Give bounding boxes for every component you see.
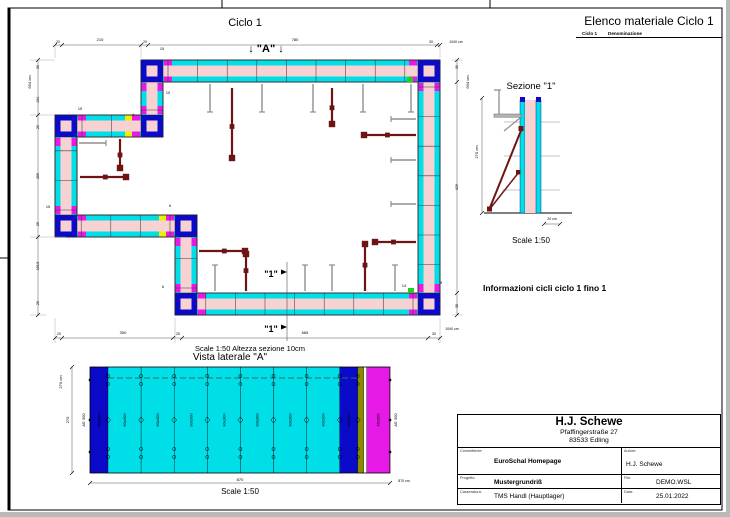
- svg-text:20: 20: [57, 332, 61, 336]
- svg-text:30: 30: [432, 332, 436, 336]
- svg-text:25: 25: [36, 301, 40, 305]
- cycle-info-title: Informazioni cicli ciclo 1 fino 1: [483, 283, 661, 293]
- data-label: Data:: [624, 490, 633, 494]
- svg-text:35: 35: [455, 304, 459, 308]
- svg-text:15: 15: [160, 47, 164, 51]
- svg-text:780: 780: [292, 37, 299, 42]
- svg-text:134: 134: [36, 97, 40, 103]
- material-list-title: Elenco materiale Ciclo 1: [576, 14, 722, 28]
- committente-cell: Committente: EuroSchal Homepage: [458, 448, 622, 475]
- svg-text:629: 629: [455, 184, 459, 190]
- plan-view-walls: [55, 60, 440, 315]
- progetto-cell: Progetto: Mustergrundriß: [458, 475, 622, 489]
- svg-text:90x300: 90x300: [288, 413, 293, 427]
- title-block-grid: Committente: EuroSchal Homepage Autore: …: [458, 448, 720, 504]
- svg-text:30: 30: [455, 65, 459, 69]
- svg-text:AE 300: AE 300: [81, 413, 86, 427]
- svg-text:15: 15: [78, 107, 82, 111]
- material-col-denominazione: Denominazione: [608, 31, 642, 36]
- svg-text:90x300: 90x300: [188, 413, 193, 427]
- svg-text:25: 25: [36, 222, 40, 226]
- svg-text:255: 255: [36, 173, 40, 179]
- material-list-header: Ciclo 1 Denominazione: [576, 31, 722, 38]
- svg-text:870: 870: [237, 477, 244, 482]
- material-list: Elenco materiale Ciclo 1 Ciclo 1 Denomin…: [576, 14, 722, 38]
- svg-text:1040 cm: 1040 cm: [445, 327, 459, 331]
- svg-text:90x300: 90x300: [122, 413, 127, 427]
- casseratura-cell: Casseratura: TMS Handl (Hauptlager): [458, 489, 622, 503]
- svg-text:"1": "1": [264, 324, 278, 334]
- svg-text:665: 665: [302, 330, 309, 335]
- progetto-label: Progetto:: [460, 476, 475, 480]
- svg-text:"1": "1": [264, 269, 278, 279]
- svg-text:270: 270: [65, 416, 70, 423]
- lateral-view: 60x30090x30090x30090x30090x30090x30090x3…: [89, 367, 391, 473]
- company-address-2: 83533 Edling: [458, 437, 720, 445]
- section-view-title: Sezione "1": [488, 81, 574, 92]
- file-cell: File: DEMO.WSL: [622, 475, 720, 489]
- svg-text:270 cm: 270 cm: [58, 375, 63, 389]
- svg-text:20: 20: [36, 125, 40, 129]
- svg-text:45x300: 45x300: [376, 413, 381, 427]
- svg-text:30: 30: [429, 40, 433, 44]
- svg-text:60x300: 60x300: [346, 413, 351, 427]
- autore-value: H.J. Schewe: [626, 461, 663, 468]
- svg-text:25: 25: [176, 332, 180, 336]
- svg-text:↓ "A" ↓: ↓ "A" ↓: [248, 43, 284, 55]
- svg-text:90x300: 90x300: [221, 413, 226, 427]
- committente-value: EuroSchal Homepage: [494, 458, 561, 465]
- svg-text:4: 4: [132, 113, 134, 117]
- svg-text:210: 210: [97, 37, 104, 42]
- progetto-value: Mustergrundriß: [494, 479, 542, 486]
- autore-label: Autore:: [624, 449, 636, 453]
- lateral-view-title: Vista laterale "A": [130, 352, 330, 363]
- svg-text:9: 9: [440, 281, 442, 285]
- lateral-view-scale: Scale 1:50: [150, 487, 330, 496]
- svg-text:60x300: 60x300: [97, 413, 102, 427]
- svg-text:90x300: 90x300: [321, 413, 326, 427]
- svg-text:90x300: 90x300: [155, 413, 160, 427]
- company-name: H.J. Schewe: [458, 416, 720, 429]
- svg-text:10: 10: [166, 91, 170, 95]
- cycle-info-table: Informazioni cicli ciclo 1 fino 1: [483, 283, 661, 294]
- material-col-ciclo: Ciclo 1: [576, 31, 604, 36]
- svg-text:20: 20: [143, 40, 147, 44]
- svg-text:30: 30: [36, 65, 40, 69]
- data-cell: Data: 25.01.2022: [622, 489, 720, 503]
- title-block: H.J. Schewe Pfaffingerstraße 27 83533 Ed…: [457, 414, 721, 505]
- file-label: File:: [624, 476, 631, 480]
- svg-text:20: 20: [56, 40, 60, 44]
- svg-text:168,5: 168,5: [36, 262, 40, 271]
- svg-text:300: 300: [120, 330, 127, 335]
- svg-text:AE 300: AE 300: [393, 413, 398, 427]
- svg-text:694 cm: 694 cm: [465, 75, 470, 89]
- section-view: [484, 90, 572, 213]
- svg-text:1040 cm: 1040 cm: [449, 40, 463, 44]
- svg-text:6: 6: [162, 285, 164, 289]
- drawing-sheet: 2021020780301040 cm2030025665301040 cm69…: [0, 0, 726, 512]
- svg-text:14: 14: [402, 284, 406, 288]
- plan-view-title: Ciclo 1: [175, 17, 315, 29]
- svg-text:6: 6: [169, 204, 171, 208]
- title-block-company: H.J. Schewe Pfaffingerstraße 27 83533 Ed…: [458, 415, 720, 448]
- section-view-scale: Scale 1:50: [488, 236, 574, 245]
- data-value: 25.01.2022: [656, 493, 689, 500]
- autore-cell: Autore: H.J. Schewe: [622, 448, 720, 475]
- company-address-1: Pfaffingerstraße 27: [458, 429, 720, 437]
- svg-text:90x300: 90x300: [254, 413, 259, 427]
- svg-text:270 cm: 270 cm: [474, 145, 479, 159]
- svg-text:15: 15: [46, 205, 50, 209]
- committente-label: Committente:: [460, 449, 483, 453]
- casseratura-label: Casseratura:: [460, 490, 482, 494]
- casseratura-value: TMS Handl (Hauptlager): [494, 493, 564, 500]
- svg-text:870 cm: 870 cm: [398, 479, 410, 483]
- svg-text:20 cm: 20 cm: [547, 217, 557, 221]
- file-value: DEMO.WSL: [656, 479, 691, 486]
- svg-text:694 cm: 694 cm: [27, 75, 32, 89]
